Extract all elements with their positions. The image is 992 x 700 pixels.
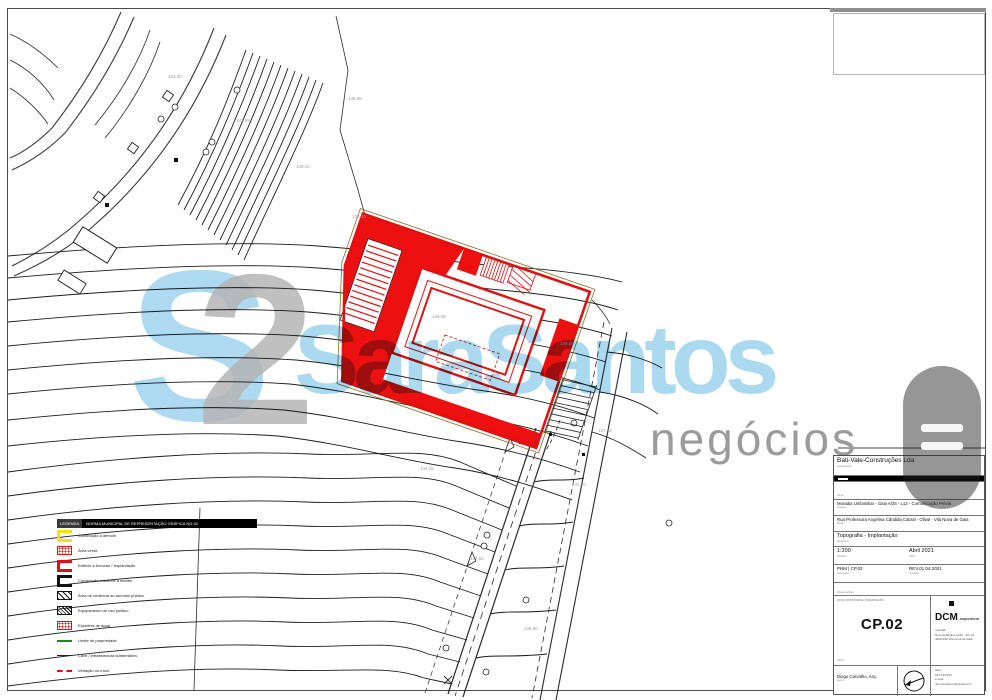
- logo-square-icon: [949, 601, 954, 606]
- contour-cross-road: [476, 352, 662, 658]
- titleblock-drawing-row: Topografia - Implantação desenho: [834, 532, 984, 547]
- legend-item: Vedação ou muro: [57, 663, 257, 678]
- north-arrow-icon: [901, 668, 927, 694]
- titleblock-notes-row: observações: [834, 583, 984, 596]
- titleblock-address-row: Rua Professora Angelina Cândida Cabral -…: [834, 516, 984, 532]
- swatch-licensed-building-icon: [57, 560, 72, 572]
- handle-bar-icon: [921, 424, 963, 432]
- legend-item: Edifício a licenciar / Implantação: [57, 558, 257, 573]
- sheet-number-cell: peça desenhada, implantação CP.02 folha: [834, 596, 931, 665]
- titleblock-scale-date-row: 1:200 escala Abril 2021 data: [834, 547, 984, 565]
- svg-text:139.80: 139.80: [560, 341, 574, 346]
- svg-text:141.20: 141.20: [572, 482, 586, 487]
- handle-bar-icon: [921, 442, 963, 450]
- building-footprint: [304, 209, 626, 464]
- overlay-drag-handle[interactable]: [903, 366, 981, 509]
- drawing-type: Topografia - Implantação: [837, 533, 981, 540]
- swatch-underground-icon: [57, 655, 72, 656]
- svg-text:148.56: 148.56: [432, 314, 446, 319]
- titleblock-sheet-row: peça desenhada, implantação CP.02 folha …: [834, 596, 984, 666]
- legend-item: Área verde: [57, 543, 257, 558]
- titleblock-process-row: PHM | CP.02 processo REV.01 04.2021 revi…: [834, 565, 984, 583]
- svg-text:138.30: 138.30: [352, 214, 366, 219]
- legend-item: Cave / infraestrutura subterrânea: [57, 648, 257, 663]
- swatch-demolition-icon: [57, 530, 72, 542]
- road-lines: [10, 12, 226, 276]
- architect-logo-cell: DCM_ARQUITECTO morada: Rua da Bélgica 34…: [931, 596, 984, 665]
- contour-fan: [178, 50, 323, 260]
- swatch-water-icon: [57, 621, 72, 630]
- legend-item: Construção a demolir: [57, 528, 257, 543]
- legend-item: Equipamento de uso público: [57, 603, 257, 618]
- svg-text:151.30: 151.30: [168, 74, 182, 79]
- svg-text:146.10: 146.10: [296, 164, 310, 169]
- date-value: Abril 2021: [909, 548, 981, 555]
- swatch-public-cession-icon: [57, 591, 72, 600]
- stair-hatch-right: [544, 374, 596, 444]
- scale-value: 1:200: [837, 548, 909, 555]
- legend-prefix: LEGENDA: [57, 519, 82, 528]
- legend-item: Limite de propriedade: [57, 633, 257, 648]
- swatch-existing-building-icon: [57, 575, 72, 587]
- swatch-public-equipment-icon: [57, 606, 72, 615]
- swatch-green-area-icon: [57, 546, 72, 555]
- svg-text:143.89: 143.89: [236, 118, 250, 123]
- svg-text:137.45: 137.45: [598, 428, 612, 433]
- empty-revision-box: [833, 13, 985, 75]
- architect-logo: DCM_ARQUITECTO: [935, 612, 982, 623]
- legend-item: Espelhos de água: [57, 618, 257, 633]
- contact-cell: telef: 223 743 684 e-mail: dcm.arquitect…: [931, 666, 984, 696]
- north-arrow-cell: [898, 666, 931, 696]
- legend: LEGENDA NORMA MUNICIPAL DE REPRESENTAÇÃO…: [57, 519, 257, 678]
- sheet-number: CP.02: [837, 616, 927, 633]
- swatch-property-limit-icon: [57, 640, 72, 642]
- svg-text:135.60: 135.60: [524, 626, 538, 631]
- titleblock-bottom-row: Diogo Carvalho, Arq. autor telef: 223 74…: [834, 666, 984, 696]
- swatch-fence-icon: [57, 670, 72, 672]
- legend-title: NORMA MUNICIPAL DE REPRESENTAÇÃO GRÁFICA…: [82, 519, 257, 528]
- svg-text:149.55: 149.55: [348, 96, 362, 101]
- svg-text:144.15: 144.15: [420, 466, 434, 471]
- legend-header: LEGENDA NORMA MUNICIPAL DE REPRESENTAÇÃO…: [57, 519, 257, 528]
- site-address: Rua Professora Angelina Cândida Cabral -…: [837, 517, 981, 522]
- legend-item: Construção existente a manter: [57, 573, 257, 588]
- svg-text:147.52: 147.52: [470, 556, 484, 561]
- legend-item: Área de cedência ao domínio público: [57, 588, 257, 603]
- scan-edge-bar: [830, 8, 986, 12]
- author-cell: Diogo Carvalho, Arq. autor: [834, 666, 898, 696]
